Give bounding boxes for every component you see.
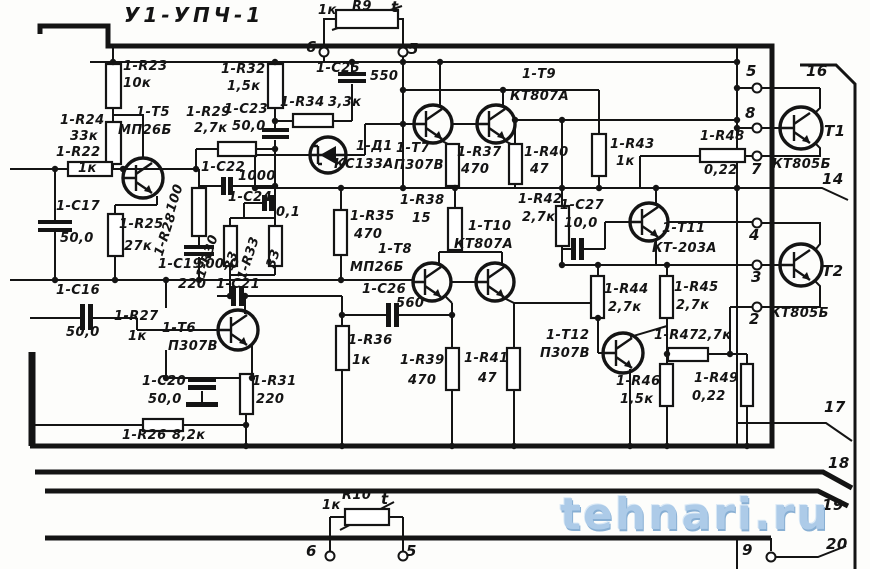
- component-label: 2,7к: [608, 301, 641, 315]
- component-label: 50,0: [60, 232, 94, 246]
- junction-dot: [664, 262, 670, 268]
- component-label: 1-R22: [56, 146, 101, 160]
- junction-dot: [400, 59, 406, 65]
- component-label: 560: [396, 297, 424, 311]
- junction-dot: [559, 262, 565, 268]
- component-label: 1-R31: [252, 375, 297, 389]
- component-label: П307В: [540, 347, 590, 361]
- component-label: 1-Д1: [356, 140, 393, 154]
- component-label: 1-R25: [119, 218, 164, 232]
- component-label: 5: [408, 42, 419, 56]
- component-label: 1-Т11: [662, 222, 705, 236]
- component-label: 220: [178, 278, 206, 292]
- component-label: 18: [828, 456, 850, 470]
- component-label: 1-R49: [694, 372, 739, 386]
- component-label: 2,7к: [676, 299, 709, 313]
- component-label: 1-R42: [518, 193, 563, 207]
- component-label: 1-Т5: [136, 106, 170, 120]
- watermark: tehnari.ru: [560, 489, 830, 540]
- component-label: 1-R41: [464, 352, 509, 366]
- junction-dot: [400, 87, 406, 93]
- component-label: 14: [822, 172, 844, 186]
- component-label: 1-С25: [316, 62, 360, 76]
- junction-dot: [193, 166, 199, 172]
- capacitor-c25: [338, 79, 366, 83]
- component-label: 1к: [616, 155, 635, 169]
- junction-dot: [243, 422, 249, 428]
- component-label: 1-R48: [700, 130, 745, 144]
- junction-dot: [400, 121, 406, 127]
- capacitor-c23: [262, 128, 289, 132]
- capacitor-c27: [571, 238, 576, 260]
- component-label: 1-R24: [60, 114, 105, 128]
- junction-dot: [338, 277, 344, 283]
- resistor-r40: [509, 144, 522, 184]
- junction-dot: [437, 59, 443, 65]
- resistor-r41: [507, 348, 520, 390]
- terminal-8: [753, 124, 762, 133]
- component-label: 220: [256, 393, 284, 407]
- resistor-r23: [106, 64, 121, 108]
- component-label: 1-R38: [400, 194, 445, 208]
- component-label: 1-С24: [228, 191, 272, 205]
- resistor-r29: [218, 142, 256, 156]
- junction-dot: [452, 185, 458, 191]
- junction-dot: [559, 185, 565, 191]
- component-label: 1-R35: [350, 210, 395, 224]
- component-label: Т1: [824, 124, 845, 138]
- thermistor-r10: [345, 509, 389, 525]
- component-label: 2,7к: [698, 329, 731, 343]
- terminal-6-bottom: [326, 552, 335, 561]
- component-label: 1-R32: [221, 63, 266, 77]
- component-label: 1-С27: [560, 199, 604, 213]
- component-label: 1к: [78, 162, 97, 176]
- component-label: 550: [370, 70, 398, 84]
- junction-dot: [653, 185, 659, 191]
- resistor-r49: [741, 364, 753, 406]
- component-label: 3: [751, 270, 762, 284]
- component-label: КТ-203А: [652, 242, 717, 256]
- component-label: 6: [306, 40, 317, 54]
- component-label: 2,7к: [522, 211, 555, 225]
- component-label: 0,1: [276, 206, 300, 220]
- junction-dot: [512, 117, 518, 123]
- component-label: 1000: [238, 170, 276, 184]
- junction-dot: [734, 185, 740, 191]
- resistor-r48: [700, 149, 745, 162]
- component-label: 1-Т7: [396, 142, 430, 156]
- component-label: 1-R27: [114, 310, 159, 324]
- resistor-r28: [192, 188, 206, 236]
- component-label: 1-R36: [348, 334, 393, 348]
- component-label: 47: [530, 163, 549, 177]
- component-label: КТ805Б: [770, 307, 829, 321]
- component-label: 1-R43: [610, 138, 655, 152]
- junction-dot: [338, 185, 344, 191]
- resistor-r44: [591, 276, 604, 318]
- component-label: 1-С21: [216, 278, 260, 292]
- component-label: 1-R26: [122, 429, 167, 443]
- resistor-r35: [334, 210, 347, 255]
- schematic-title: У1-УПЧ-1: [124, 3, 264, 27]
- junction-dot: [664, 443, 670, 449]
- component-label: 50,0: [232, 120, 266, 134]
- component-label: 1-С26: [362, 283, 406, 297]
- component-label: 1-R23: [123, 60, 168, 74]
- junction-dot: [744, 443, 750, 449]
- component-label: 5: [406, 544, 417, 558]
- component-label: 1к: [352, 354, 371, 368]
- junction-dot: [400, 185, 406, 191]
- resistor-r46: [660, 364, 673, 406]
- junction-dot: [339, 443, 345, 449]
- junction-dot: [272, 59, 278, 65]
- component-label: 50,0: [148, 393, 182, 407]
- component-label: 15: [412, 212, 431, 226]
- component-label: 1-R37: [457, 146, 502, 160]
- resistor-r45: [660, 276, 673, 318]
- capacitor-c22: [221, 177, 226, 195]
- component-label: 1-R46: [616, 375, 661, 389]
- component-label: R9: [352, 0, 372, 14]
- junction-dot: [272, 146, 278, 152]
- schematic-page: У1-УПЧ-1 1кR9t651-R2310к1-R321,5к1-С2555…: [0, 0, 870, 569]
- junction-dot: [559, 117, 565, 123]
- capacitor-c20-ground: [186, 402, 218, 407]
- resistor-r43: [592, 134, 606, 176]
- capacitor-c26: [386, 303, 391, 327]
- component-label: 1,5к: [227, 80, 260, 94]
- component-label: 470: [408, 374, 436, 388]
- terminal-6-top: [320, 48, 329, 57]
- junction-dot: [596, 185, 602, 191]
- component-label: 8: [745, 106, 756, 120]
- component-label: 1-Т9: [522, 68, 556, 82]
- junction-dot: [110, 59, 116, 65]
- component-label: 9: [742, 543, 753, 557]
- component-label: 3,3к: [328, 96, 361, 110]
- capacitor-c17: [38, 220, 72, 224]
- junction-dot: [627, 443, 633, 449]
- junction-dot: [449, 443, 455, 449]
- component-label: П307В: [394, 159, 444, 173]
- junction-dot: [734, 85, 740, 91]
- component-label: 16: [806, 64, 828, 78]
- junction-dot: [243, 443, 249, 449]
- component-label: 10к: [123, 77, 151, 91]
- component-label: МП26Б: [350, 261, 404, 275]
- component-label: 2,7к: [194, 122, 227, 136]
- component-label: 47: [478, 372, 497, 386]
- junction-dot: [227, 293, 233, 299]
- junction-dot: [272, 118, 278, 124]
- component-label: 2: [749, 312, 760, 326]
- component-label: МП26Б: [118, 124, 172, 138]
- component-label: 1-R47: [654, 329, 699, 343]
- capacitor-c20: [188, 385, 216, 390]
- resistor-r39: [446, 348, 459, 390]
- terminal-9: [767, 553, 776, 562]
- component-label: R10: [342, 489, 371, 503]
- component-label: 1-Т12: [546, 329, 589, 343]
- component-label: 1-R45: [674, 281, 719, 295]
- component-label: КС133А: [334, 158, 394, 172]
- junction-dot: [52, 166, 58, 172]
- component-label: 1-С20: [142, 375, 186, 389]
- component-label: 10,0: [564, 217, 598, 231]
- component-label: 1,5к: [620, 393, 653, 407]
- component-label: 0,22: [692, 390, 726, 404]
- component-label: 6: [306, 544, 317, 558]
- resistor-r47: [668, 348, 708, 361]
- component-label: 17: [824, 400, 846, 414]
- component-label: 1-Т10: [468, 220, 511, 234]
- terminal-5: [753, 84, 762, 93]
- component-label: 1-Т6: [162, 322, 196, 336]
- component-label: 1-R34: [280, 96, 325, 110]
- junction-dot: [734, 59, 740, 65]
- component-label: 33к: [70, 130, 98, 144]
- component-label: 50,0: [66, 326, 100, 340]
- component-label: t: [391, 0, 399, 14]
- junction-dot: [339, 312, 345, 318]
- component-label: 1-С23: [224, 103, 268, 117]
- component-label: 1-Т8: [378, 243, 412, 257]
- component-label: 1-С16: [56, 284, 100, 298]
- capacitor-c23: [262, 135, 289, 139]
- junction-dot: [112, 277, 118, 283]
- component-label: 8,2к: [172, 429, 205, 443]
- component-label: КТ807А: [454, 238, 513, 252]
- component-label: 1-R39: [400, 354, 445, 368]
- component-label: П307В: [168, 340, 218, 354]
- component-label: 1-R40: [524, 146, 569, 160]
- component-label: 0,22: [704, 164, 738, 178]
- component-label: 470: [354, 228, 382, 242]
- junction-dot: [242, 293, 248, 299]
- component-label: 1к: [128, 330, 147, 344]
- component-label: t: [381, 492, 389, 506]
- component-label: Т2: [822, 264, 843, 278]
- junction-dot: [734, 117, 740, 123]
- component-label: 4: [749, 228, 760, 242]
- capacitor-c27: [579, 238, 584, 260]
- junction-dot: [163, 277, 169, 283]
- component-label: 1к: [318, 4, 337, 18]
- junction-dot: [120, 166, 126, 172]
- component-label: 27к: [124, 240, 152, 254]
- junction-dot: [664, 351, 670, 357]
- junction-dot: [500, 87, 506, 93]
- component-label: КТ807А: [510, 90, 569, 104]
- component-label: 7: [751, 162, 762, 176]
- resistor-r34: [293, 114, 333, 127]
- terminal-5-top: [399, 48, 408, 57]
- junction-dot: [511, 443, 517, 449]
- junction-dot: [727, 351, 733, 357]
- component-label: 470: [461, 163, 489, 177]
- junction-dot: [449, 312, 455, 318]
- component-label: 5: [746, 64, 757, 78]
- component-label: 500,0: [196, 258, 239, 272]
- component-label: 1-R44: [604, 283, 649, 297]
- component-label: 1-С17: [56, 200, 100, 214]
- junction-dot: [595, 262, 601, 268]
- capacitor-c20: [188, 378, 216, 382]
- component-label: 1к: [322, 499, 341, 513]
- junction-dot: [595, 315, 601, 321]
